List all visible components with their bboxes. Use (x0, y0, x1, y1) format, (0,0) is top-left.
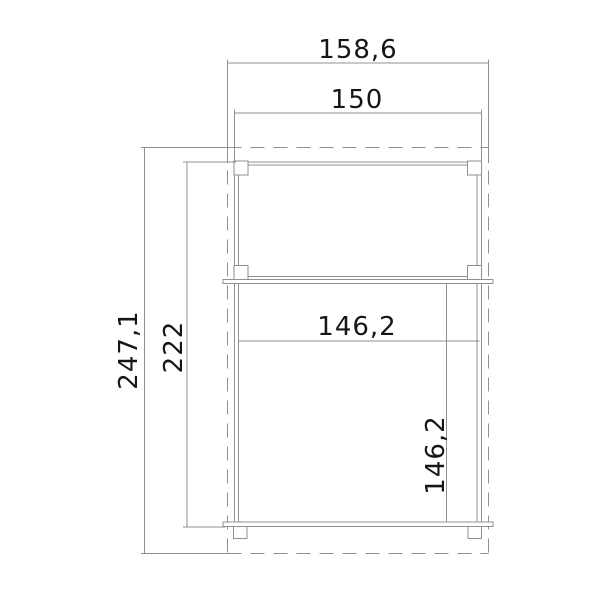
base-plate (223, 522, 493, 527)
feet (234, 527, 482, 539)
dim-label-overall-width: 158,6 (318, 35, 397, 65)
foot-right (468, 527, 482, 539)
dim-label-inner-height: 146,2 (421, 415, 451, 494)
technical-drawing-canvas: 158,6 150 146,2 247,1 222 146,2 (0, 0, 600, 600)
post-top-right (468, 161, 482, 175)
dim-label-overall-height: 247,1 (114, 310, 144, 389)
upper-room-outer-wall (235, 162, 482, 280)
upper-room (235, 162, 482, 280)
post-top-left (234, 161, 248, 175)
dimension-drawing: 158,6 150 146,2 247,1 222 146,2 (0, 0, 600, 600)
upper-room-inner-wall (239, 165, 478, 277)
foot-left (234, 527, 248, 539)
dim-label-frame-height: 222 (159, 321, 189, 374)
post-bottom-left (234, 266, 248, 280)
middle-floor-plate (223, 280, 493, 284)
dim-label-inner-width: 146,2 (317, 312, 396, 342)
corner-posts (234, 161, 482, 280)
dim-label-frame-width: 150 (331, 85, 384, 115)
post-bottom-right (468, 266, 482, 280)
